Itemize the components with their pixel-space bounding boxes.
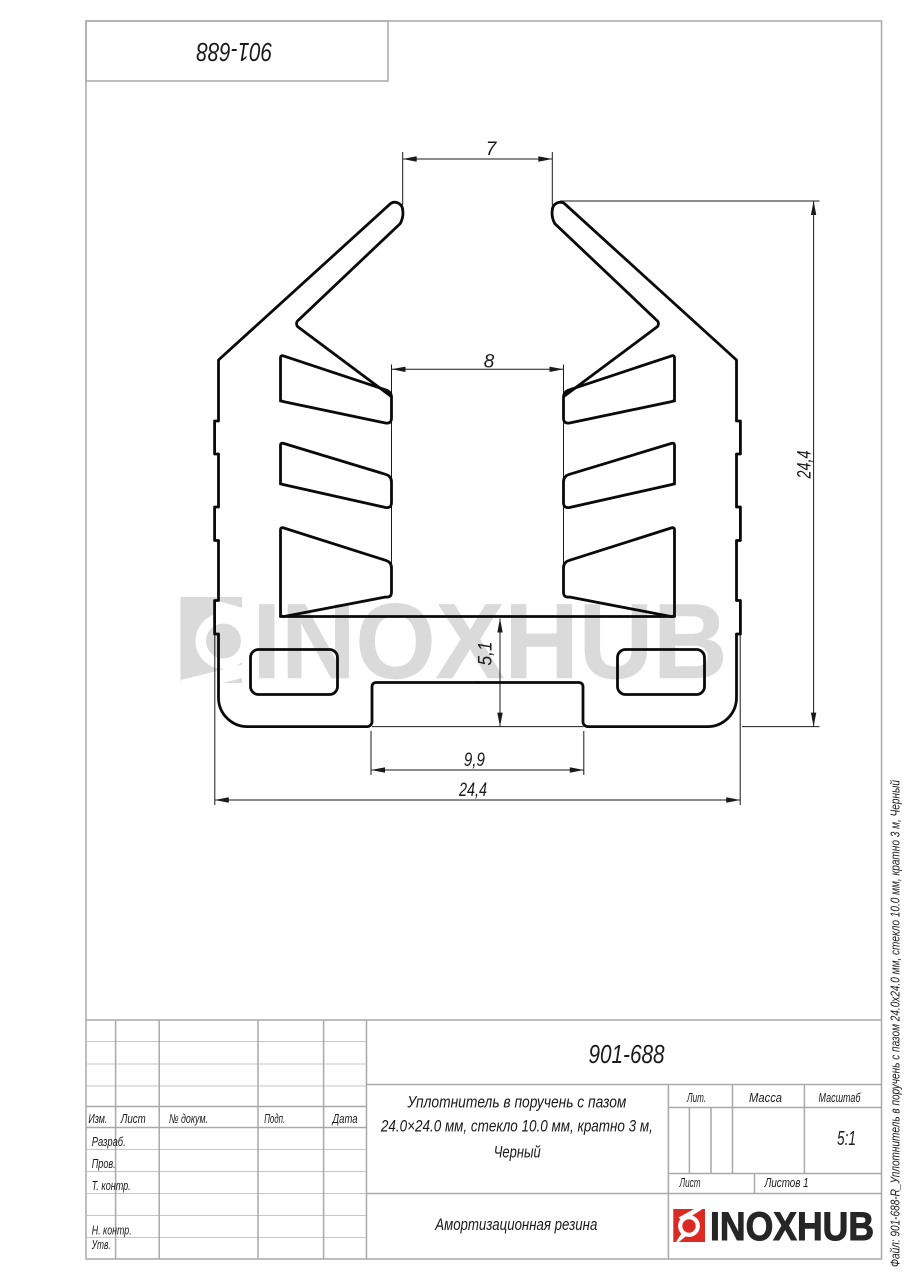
- svg-text:Листов 1: Листов 1: [764, 1175, 809, 1190]
- svg-text:901-688: 901-688: [196, 37, 272, 67]
- svg-text:24,4: 24,4: [458, 780, 487, 801]
- svg-text:Лит.: Лит.: [686, 1090, 706, 1105]
- svg-text:№ докум.: № докум.: [169, 1111, 208, 1126]
- svg-text:Т. контр.: Т. контр.: [92, 1178, 131, 1193]
- svg-text:8: 8: [484, 352, 495, 373]
- svg-text:901-688: 901-688: [589, 1039, 665, 1069]
- svg-text:Амортизационная резина: Амортизационная резина: [434, 1216, 597, 1234]
- svg-text:INOXHUB: INOXHUB: [710, 1205, 874, 1249]
- svg-text:9,9: 9,9: [464, 750, 485, 771]
- svg-text:24,4: 24,4: [795, 451, 816, 480]
- svg-text:Пров.: Пров.: [92, 1156, 116, 1171]
- svg-text:Файл: 901-688-R_Уплотнитель в: Файл: 901-688-R_Уплотнитель в поручень с…: [889, 780, 903, 1267]
- svg-text:Уплотнитель в поручень с пазом: Уплотнитель в поручень с пазом: [407, 1094, 627, 1112]
- svg-text:Масса: Масса: [749, 1090, 782, 1105]
- svg-text:Лист: Лист: [120, 1111, 146, 1126]
- svg-text:24.0×24.0 мм, стекло 10.0 мм,: 24.0×24.0 мм, стекло 10.0 мм, кратно 3 м…: [380, 1118, 653, 1136]
- svg-text:Разраб.: Разраб.: [92, 1134, 126, 1149]
- svg-text:Н. контр.: Н. контр.: [92, 1223, 132, 1238]
- svg-text:Утв.: Утв.: [91, 1237, 111, 1252]
- svg-text:Подп.: Подп.: [264, 1111, 285, 1126]
- svg-text:Черный: Черный: [494, 1144, 541, 1162]
- svg-text:Изм.: Изм.: [88, 1111, 107, 1126]
- svg-text:Дата: Дата: [331, 1111, 357, 1126]
- svg-text:7: 7: [486, 139, 498, 160]
- svg-text:5,1: 5,1: [476, 642, 497, 666]
- svg-text:Лист: Лист: [679, 1175, 701, 1190]
- svg-text:Масштаб: Масштаб: [819, 1090, 861, 1105]
- svg-text:5:1: 5:1: [837, 1128, 856, 1150]
